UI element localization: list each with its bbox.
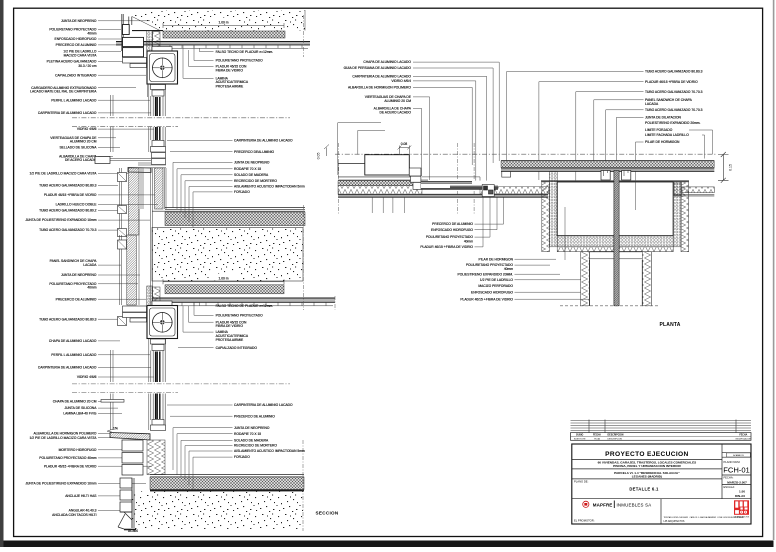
svg-text:ALBARDILLA DE HORMIGON POLIMER: ALBARDILLA DE HORMIGON POLIMERO: [348, 86, 411, 90]
svg-text:CARPINTERIA DE ALUMINIO LACADO: CARPINTERIA DE ALUMINIO LACADO: [352, 74, 411, 78]
svg-text:LACADA: LACADA: [83, 263, 97, 267]
svg-text:ENFOSCADO HIDROFUGO: ENFOSCADO HIDROFUGO: [471, 290, 513, 294]
svg-text:CAPIALZADO INTEGRADO: CAPIALZADO INTEGRADO: [55, 73, 97, 77]
svg-text:RECRECIDO DE MORTERO: RECRECIDO DE MORTERO: [234, 179, 277, 183]
svg-text:PILAR DE HORMIGON: PILAR DE HORMIGON: [479, 257, 514, 261]
svg-text:DE ACERO LACADO: DE ACERO LACADO: [65, 158, 97, 162]
svg-text:POLIURETANO PROYECTADO: POLIURETANO PROYECTADO: [216, 59, 264, 63]
svg-text:JUNTA DE NEOPRENO: JUNTA DE NEOPRENO: [234, 161, 270, 165]
svg-text:CARPINTERIA DE ALUMINIO LACADO: CARPINTERIA DE ALUMINIO LACADO: [234, 403, 293, 407]
svg-text:PLANO DE:: PLANO DE:: [574, 480, 589, 484]
svg-text:FIBRA DE VIDRIO: FIBRA DE VIDRIO: [216, 68, 244, 72]
svg-text:PLADUR 46/15 +FIBRA DE VIDRIO: PLADUR 46/15 +FIBRA DE VIDRIO: [44, 193, 97, 197]
svg-text:L35 ARQUITECTOS: L35 ARQUITECTOS: [734, 515, 750, 518]
svg-text:PERFIL L ALUMINIO LACADO: PERFIL L ALUMINIO LACADO: [51, 353, 97, 357]
svg-text:30.3 / 20 cm: 30.3 / 20 cm: [78, 64, 96, 68]
svg-text:PRECERCO DE ALUMINIO: PRECERCO DE ALUMINIO: [234, 414, 275, 418]
svg-text:0.05: 0.05: [317, 153, 321, 160]
svg-text:RODAPIE 70 X 15: RODAPIE 70 X 15: [234, 167, 261, 171]
svg-text:FECHA: FECHA: [739, 434, 747, 437]
svg-text:MODIFICACION: MODIFICACION: [736, 437, 752, 440]
svg-text:LIMITE FACHADA LADRILLO: LIMITE FACHADA LADRILLO: [645, 133, 689, 137]
svg-text:TUBO ACERO GALVANIZADO 70.70.3: TUBO ACERO GALVANIZADO 70.70.3: [645, 108, 703, 112]
svg-text:ALUMINIO 20 CM: ALUMINIO 20 CM: [70, 140, 97, 144]
svg-text:JUNTA DE NEOPRENO: JUNTA DE NEOPRENO: [234, 426, 270, 430]
svg-text:LEGANES (MADRID): LEGANES (MADRID): [632, 475, 662, 479]
svg-text:MARZO-2.007: MARZO-2.007: [727, 480, 747, 484]
svg-text:L35 ARQUITECTOS: L35 ARQUITECTOS: [664, 520, 685, 523]
svg-text:PLADUR 46/15 +FIBRA DE VIDRIO: PLADUR 46/15 +FIBRA DE VIDRIO: [420, 245, 473, 249]
svg-text:FALSO TECHO DE PLADUR e=12mm.: FALSO TECHO DE PLADUR e=12mm.: [216, 50, 274, 54]
svg-text:ANCLAJE HILTI HAS: ANCLAJE HILTI HAS: [65, 494, 97, 498]
svg-text:ANCLADA CON TACOS HILTI: ANCLADA CON TACOS HILTI: [52, 513, 96, 517]
svg-text:PILAR DE HORMIGON: PILAR DE HORMIGON: [645, 140, 680, 144]
svg-text:AISLAMIENTO ACUSTICO IMPACTODA: AISLAMIENTO ACUSTICO IMPACTODAN 5mm: [234, 185, 305, 189]
svg-text:FORJADO: FORJADO: [234, 455, 250, 459]
svg-text:40mm: 40mm: [504, 267, 513, 271]
svg-text:PLADUR 46/15 +FIBRA DE VIDRIO: PLADUR 46/15 +FIBRA DE VIDRIO: [44, 464, 97, 468]
svg-text:PLETINA ACERO GALVANIZADO: PLETINA ACERO GALVANIZADO: [47, 60, 97, 64]
svg-text:1:50: 1:50: [739, 489, 745, 493]
svg-text:ENFOSCADO HIDROFUGO: ENFOSCADO HIDROFUGO: [431, 228, 473, 232]
svg-text:PERFIL L ALUMINIO LACADO: PERFIL L ALUMINIO LACADO: [51, 98, 97, 102]
svg-text:PLANO NUM:: PLANO NUM:: [724, 460, 741, 464]
svg-text:ESCALA:: ESCALA:: [724, 485, 736, 489]
svg-text:LADRILLO HUECO DOBLE: LADRILLO HUECO DOBLE: [56, 203, 98, 207]
svg-text:PLADUR 46/15 +FIBRA DE VIDRIO: PLADUR 46/15 +FIBRA DE VIDRIO: [645, 80, 698, 84]
svg-text:SOLADO DE MADERA: SOLADO DE MADERA: [234, 173, 269, 177]
svg-text:PRECERCO DE ALUMINIO: PRECERCO DE ALUMINIO: [56, 43, 97, 47]
svg-text:VIDRIO 4/6/4: VIDRIO 4/6/4: [391, 79, 411, 83]
svg-text:1/2 PIE DE LADRILLO MACIZO CAR: 1/2 PIE DE LADRILLO MACIZO CARA VISTA: [30, 436, 98, 440]
svg-text:CARPINTERIA DE ALUMINIO LACADO: CARPINTERIA DE ALUMINIO LACADO: [234, 139, 293, 143]
svg-text:RODAPIE 70 X 15: RODAPIE 70 X 15: [234, 432, 261, 436]
svg-text:CARPINTERIA DE ALUMINIO LACADO: CARPINTERIA DE ALUMINIO LACADO: [38, 111, 97, 115]
svg-text:HOJA: HOJA: [594, 437, 600, 440]
svg-text:DESCRIPCION: DESCRIPCION: [608, 438, 623, 440]
svg-text:JUNTA DE DILATACION: JUNTA DE DILATACION: [645, 115, 682, 119]
svg-text:40mm: 40mm: [464, 240, 473, 244]
svg-text:FIBRA DE VIDRIO: FIBRA DE VIDRIO: [216, 324, 244, 328]
svg-text:0.08: 0.08: [401, 142, 408, 146]
svg-text:POLIESTIRENO EXPANDIDO 20mm.: POLIESTIRENO EXPANDIDO 20mm.: [645, 121, 701, 125]
svg-text:PROYECTO EJECUCION: PROYECTO EJECUCION: [605, 451, 689, 458]
svg-text:TUBO ACERO GALVANIZADO 80.80.3: TUBO ACERO GALVANIZADO 80.80.3: [39, 317, 97, 321]
svg-text:1/2 PIE DE LADRILLO MACIZO CAR: 1/2 PIE DE LADRILLO MACIZO CARA VISTA: [30, 172, 98, 176]
svg-text:ALUMINIO 20 CM: ALUMINIO 20 CM: [384, 99, 411, 103]
svg-text:PLANTA: PLANTA: [660, 322, 681, 328]
svg-text:TUBO ACERO GALVANIZADO 80.80.2: TUBO ACERO GALVANIZADO 80.80.2: [39, 208, 97, 212]
svg-text:LACADO MATE DEL RAL DE CARPINT: LACADO MATE DEL RAL DE CARPINTERIA: [30, 90, 97, 94]
svg-text:LACADA: LACADA: [645, 102, 659, 106]
svg-text:VIDRIO 4/6/6: VIDRIO 4/6/6: [77, 127, 97, 131]
svg-text:ALBARDILLA DE HORMIGON POLIMER: ALBARDILLA DE HORMIGON POLIMERO: [33, 431, 96, 435]
svg-text:DE ACERO LACADO: DE ACERO LACADO: [379, 111, 411, 115]
svg-text:1/2 PIE DE LADRILLO: 1/2 PIE DE LADRILLO: [480, 278, 514, 282]
svg-text:ENFOSCADO HIDROFUGO: ENFOSCADO HIDROFUGO: [55, 37, 97, 41]
svg-text:MORTERO HIDROFUGO: MORTERO HIDROFUGO: [59, 448, 97, 452]
svg-text:JUNTA DE POLIESTIRENO EXPANDID: JUNTA DE POLIESTIRENO EXPANDIDO 10mm: [25, 218, 96, 222]
svg-text:JUNTA DE POLIESTIRENO EXPANDID: JUNTA DE POLIESTIRENO EXPANDIDO 10mm: [25, 482, 96, 486]
svg-text:VIDRIO 4/6/6: VIDRIO 4/6/6: [77, 375, 97, 379]
svg-text:PRECERCO DE ALUMINIO: PRECERCO DE ALUMINIO: [432, 222, 473, 226]
svg-text:CHAPA DE ALUMINIO LACADO: CHAPA DE ALUMINIO LACADO: [363, 60, 411, 64]
svg-text:POLIESTIRENO EXPANDIDO 20MM.: POLIESTIRENO EXPANDIDO 20MM.: [458, 272, 514, 276]
svg-text:SUSTITUYE: SUSTITUYE: [574, 438, 586, 440]
svg-text:RECRECIDO DE MORTERO: RECRECIDO DE MORTERO: [234, 444, 277, 448]
svg-text:JUNTA DE NEOPRENO: JUNTA DE NEOPRENO: [61, 19, 97, 23]
svg-text:TUBO ACERO GALVANIZADO 70.70.3: TUBO ACERO GALVANIZADO 70.70.3: [39, 228, 97, 232]
svg-text:CHAPA DE ALUMINIO LACADO: CHAPA DE ALUMINIO LACADO: [49, 339, 97, 343]
svg-text:PLADUR 46/15 +FIBRA DE VIDRIO: PLADUR 46/15 +FIBRA DE VIDRIO: [460, 297, 513, 301]
svg-text:INMUEBLES SA: INMUEBLES SA: [617, 502, 652, 507]
svg-text:MAPFRE: MAPFRE: [593, 502, 613, 507]
svg-text:DETALLE 6.1: DETALLE 6.1: [629, 487, 659, 492]
svg-text:PISCINA, PADEL Y URBANIZACION: PISCINA, PADEL Y URBANIZACION INTERIOR: [613, 464, 681, 468]
svg-text:FALSO TECHO DE PLADUR e=12mm.: FALSO TECHO DE PLADUR e=12mm.: [216, 304, 274, 308]
svg-text:SOLADO DE MADERA: SOLADO DE MADERA: [234, 439, 269, 443]
svg-text:1.00 m: 1.00 m: [218, 277, 228, 281]
svg-text:DESCRIPCION: DESCRIPCION: [608, 435, 624, 437]
svg-text:40mm: 40mm: [87, 32, 96, 36]
svg-text:EL PROMOTOR:: EL PROMOTOR:: [574, 519, 595, 523]
svg-text:TUBO ACERO GALVANIZADO 80.80.3: TUBO ACERO GALVANIZADO 80.80.3: [39, 183, 97, 187]
svg-text:FECHA: FECHA: [593, 434, 601, 437]
svg-text:PRECERCO DEALUMINIO: PRECERCO DEALUMINIO: [234, 150, 275, 154]
svg-text:MACIZO CARA VISTA: MACIZO CARA VISTA: [64, 54, 98, 58]
svg-text:CARPINTERIA DE ALUMINIO LACADO: CARPINTERIA DE ALUMINIO LACADO: [38, 366, 97, 370]
svg-text:CAPIALZADO INTEGRADO: CAPIALZADO INTEGRADO: [216, 346, 258, 350]
svg-text:1.00 m: 1.00 m: [218, 21, 228, 25]
svg-text:CHAPA DE ALUMINIO 20 CM: CHAPA DE ALUMINIO 20 CM: [53, 400, 97, 404]
svg-text:POLIURETANO PROYECTADO: POLIURETANO PROYECTADO: [426, 235, 474, 239]
svg-text:AISLAMIENTO ACUSTICO IMPACTODA: AISLAMIENTO ACUSTICO IMPACTODAN 5mm: [234, 449, 305, 453]
svg-text:POLIURETANO PROYECTADO: POLIURETANO PROYECTADO: [216, 313, 264, 317]
svg-text:JUNTA DE NEOPRENO: JUNTA DE NEOPRENO: [61, 273, 97, 277]
svg-text:ACABADOS: ACABADOS: [733, 454, 744, 457]
svg-text:FECHA:: FECHA:: [724, 476, 734, 480]
svg-text:PROTESA AIRMIE: PROTESA AIRMIE: [216, 338, 244, 342]
svg-text:PROTESA AIRMIE: PROTESA AIRMIE: [216, 84, 244, 88]
svg-text:1%: 1%: [113, 427, 118, 431]
svg-text:LIMITE FORJADO: LIMITE FORJADO: [645, 128, 673, 132]
svg-text:TRISTAN LOPEZ-CHICHERI CARLO: TRISTAN LOPEZ-CHICHERI CARLOS J. GARCIA-…: [664, 516, 745, 519]
svg-text:PRECERCO DE ALUMINIO: PRECERCO DE ALUMINIO: [56, 297, 97, 301]
svg-text:DIN-A0: DIN-A0: [735, 494, 745, 498]
svg-text:LAMINA LBM-40 FV/G: LAMINA LBM-40 FV/G: [63, 412, 97, 416]
svg-text:FCH-01: FCH-01: [723, 466, 750, 475]
svg-text:POLIURETANO PROYECTADO 40mm: POLIURETANO PROYECTADO 40mm: [39, 456, 96, 460]
svg-text:TUBO ACERO GALVANIZADO 80.80.3: TUBO ACERO GALVANIZADO 80.80.3: [645, 70, 703, 74]
svg-text:SELLADO DE SILICONA: SELLADO DE SILICONA: [59, 146, 97, 150]
svg-text:GUIA DE PERSIANA DE ALUMINIO L: GUIA DE PERSIANA DE ALUMINIO LACADO: [344, 66, 412, 70]
svg-text:SECCION: SECCION: [316, 511, 339, 516]
svg-text:40mm: 40mm: [87, 286, 96, 290]
svg-text:FORJADO: FORJADO: [234, 190, 250, 194]
svg-text:0.15: 0.15: [729, 164, 733, 171]
svg-text:SUBIO: SUBIO: [576, 435, 583, 437]
svg-text:MACIZO PERFORADO: MACIZO PERFORADO: [478, 284, 513, 288]
svg-text:AC300: AC300: [128, 529, 138, 533]
svg-text:TUBO ACERO GALVANIZADO 70.70.3: TUBO ACERO GALVANIZADO 70.70.3: [645, 90, 703, 94]
svg-text:JUNTA DE SILICONA: JUNTA DE SILICONA: [65, 406, 98, 410]
